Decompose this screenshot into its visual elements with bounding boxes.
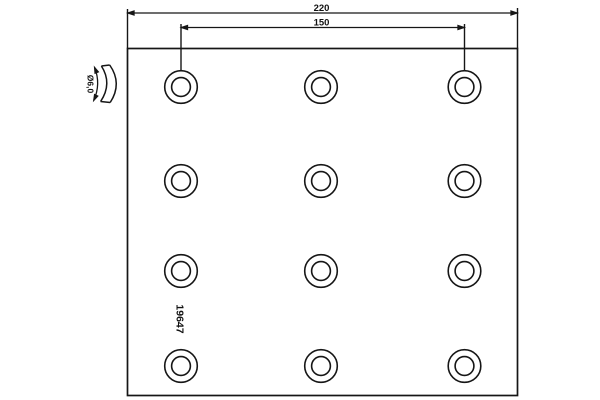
svg-text:150: 150: [314, 18, 330, 29]
svg-text:220: 220: [314, 3, 330, 14]
svg-text:19647: 19647: [174, 304, 186, 333]
svg-text:Ø6,0: Ø6,0: [86, 75, 96, 94]
